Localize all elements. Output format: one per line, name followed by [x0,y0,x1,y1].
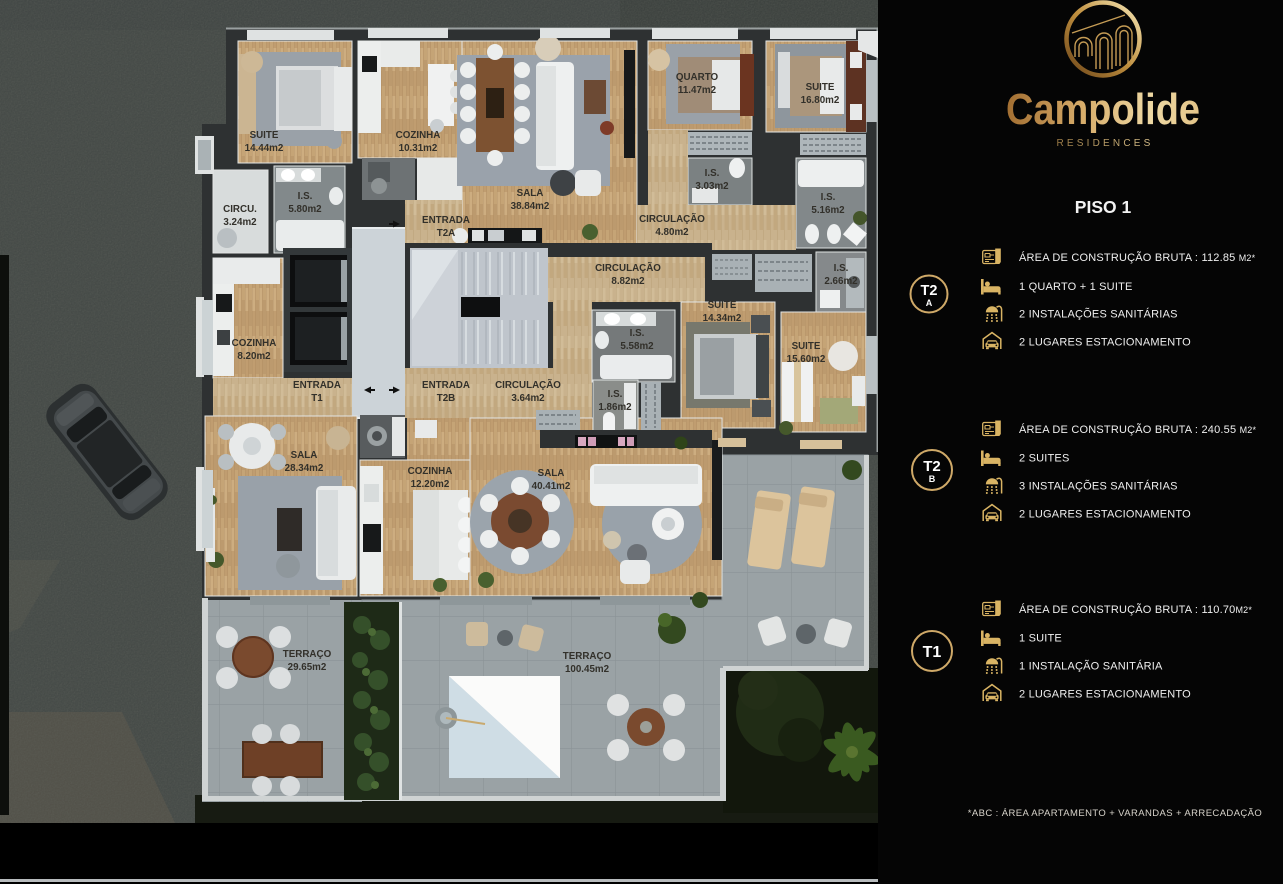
svg-text:ENTRADA: ENTRADA [422,215,470,226]
svg-text:RESIDENCES: RESIDENCES [1056,138,1153,149]
svg-text:2 LUGARES ESTACIONAMENTO: 2 LUGARES ESTACIONAMENTO [1019,509,1191,521]
svg-text:5.58m2: 5.58m2 [620,341,654,352]
svg-text:10.31m2: 10.31m2 [399,143,438,154]
svg-text:2 LUGARES ESTACIONAMENTO: 2 LUGARES ESTACIONAMENTO [1019,337,1191,349]
svg-text:COZINHA: COZINHA [232,338,277,349]
svg-text:40.41m2: 40.41m2 [532,481,571,492]
svg-text:SALA: SALA [291,450,318,461]
svg-text:29.65m2: 29.65m2 [288,662,327,673]
svg-text:I.S.: I.S. [821,192,836,203]
svg-text:TERRAÇO: TERRAÇO [563,651,612,662]
svg-text:A: A [926,298,933,308]
svg-text:ENTRADA: ENTRADA [293,380,341,391]
svg-text:15.60m2: 15.60m2 [787,354,826,365]
svg-text:1.86m2: 1.86m2 [598,402,632,413]
svg-text:2 LUGARES ESTACIONAMENTO: 2 LUGARES ESTACIONAMENTO [1019,689,1191,701]
svg-text:14.34m2: 14.34m2 [703,313,742,324]
svg-text:I.S.: I.S. [298,191,313,202]
svg-text:I.S.: I.S. [630,328,645,339]
svg-text:4.80m2: 4.80m2 [655,227,689,238]
svg-text:CIRCULAÇÃO: CIRCULAÇÃO [495,380,561,391]
svg-text:38.84m2: 38.84m2 [511,201,550,212]
svg-text:T2A: T2A [437,228,456,239]
svg-text:T1: T1 [923,644,942,661]
svg-text:SUITE: SUITE [708,300,737,311]
svg-text:SUITE: SUITE [250,130,279,141]
svg-text:*ABC : ÁREA APARTAMENTO + VAR: *ABC : ÁREA APARTAMENTO + VARANDAS + ARR… [968,808,1262,819]
svg-text:12.20m2: 12.20m2 [411,479,450,490]
svg-text:ÁREA DE CONSTRUÇÃO BRUTA : 11: ÁREA DE CONSTRUÇÃO BRUTA : 110.70M2* [1019,603,1252,616]
svg-text:2 INSTALAÇÕES SANITÁRIAS: 2 INSTALAÇÕES SANITÁRIAS [1019,308,1178,321]
svg-text:28.34m2: 28.34m2 [285,463,324,474]
svg-text:3.24m2: 3.24m2 [223,217,257,228]
svg-text:T2: T2 [921,283,938,299]
svg-text:5.80m2: 5.80m2 [288,204,322,215]
svg-text:I.S.: I.S. [608,389,623,400]
svg-text:11.47m2: 11.47m2 [678,85,717,96]
svg-text:8.82m2: 8.82m2 [611,276,645,287]
svg-text:3.03m2: 3.03m2 [695,181,729,192]
svg-text:5.16m2: 5.16m2 [811,205,845,216]
svg-text:SALA: SALA [517,188,544,199]
svg-text:SUITE: SUITE [806,82,835,93]
svg-text:CIRCU.: CIRCU. [223,204,257,215]
svg-text:16.80m2: 16.80m2 [801,95,840,106]
svg-text:T1: T1 [311,393,323,404]
svg-text:100.45m2: 100.45m2 [565,664,610,675]
svg-text:8.20m2: 8.20m2 [237,351,271,362]
svg-text:COZINHA: COZINHA [396,130,441,141]
svg-text:ÁREA DE CONSTRUÇÃO BRUTA : 11: ÁREA DE CONSTRUÇÃO BRUTA : 112.85 M2* [1019,251,1256,264]
svg-text:1 SUITE: 1 SUITE [1019,633,1062,645]
svg-text:T2: T2 [923,458,941,475]
svg-text:2 SUITES: 2 SUITES [1019,453,1070,465]
svg-text:I.S.: I.S. [705,168,720,179]
svg-text:B: B [929,474,936,484]
svg-text:SALA: SALA [538,468,565,479]
svg-text:COZINHA: COZINHA [408,466,453,477]
svg-text:Campolide: Campolide [1006,85,1200,134]
svg-text:SUITE: SUITE [792,341,821,352]
svg-text:PISO 1: PISO 1 [1075,197,1132,217]
svg-text:2.66m2: 2.66m2 [824,276,858,287]
svg-text:TERRAÇO: TERRAÇO [283,649,332,660]
svg-text:1 QUARTO + 1 SUITE: 1 QUARTO + 1 SUITE [1019,281,1133,293]
svg-text:ENTRADA: ENTRADA [422,380,470,391]
svg-text:CIRCULAÇÃO: CIRCULAÇÃO [595,263,661,274]
svg-text:QUARTO: QUARTO [676,72,719,83]
svg-text:14.44m2: 14.44m2 [245,143,284,154]
svg-text:3 INSTALAÇÕES SANITÁRIAS: 3 INSTALAÇÕES SANITÁRIAS [1019,480,1178,493]
svg-text:T2B: T2B [437,393,456,404]
svg-text:3.64m2: 3.64m2 [511,393,545,404]
svg-text:CIRCULAÇÃO: CIRCULAÇÃO [639,214,705,225]
svg-text:ÁREA DE CONSTRUÇÃO BRUTA : 24: ÁREA DE CONSTRUÇÃO BRUTA : 240.55 M2* [1019,423,1256,436]
svg-text:1 INSTALAÇÃO SANITÁRIA: 1 INSTALAÇÃO SANITÁRIA [1019,660,1163,673]
svg-text:I.S.: I.S. [834,263,849,274]
